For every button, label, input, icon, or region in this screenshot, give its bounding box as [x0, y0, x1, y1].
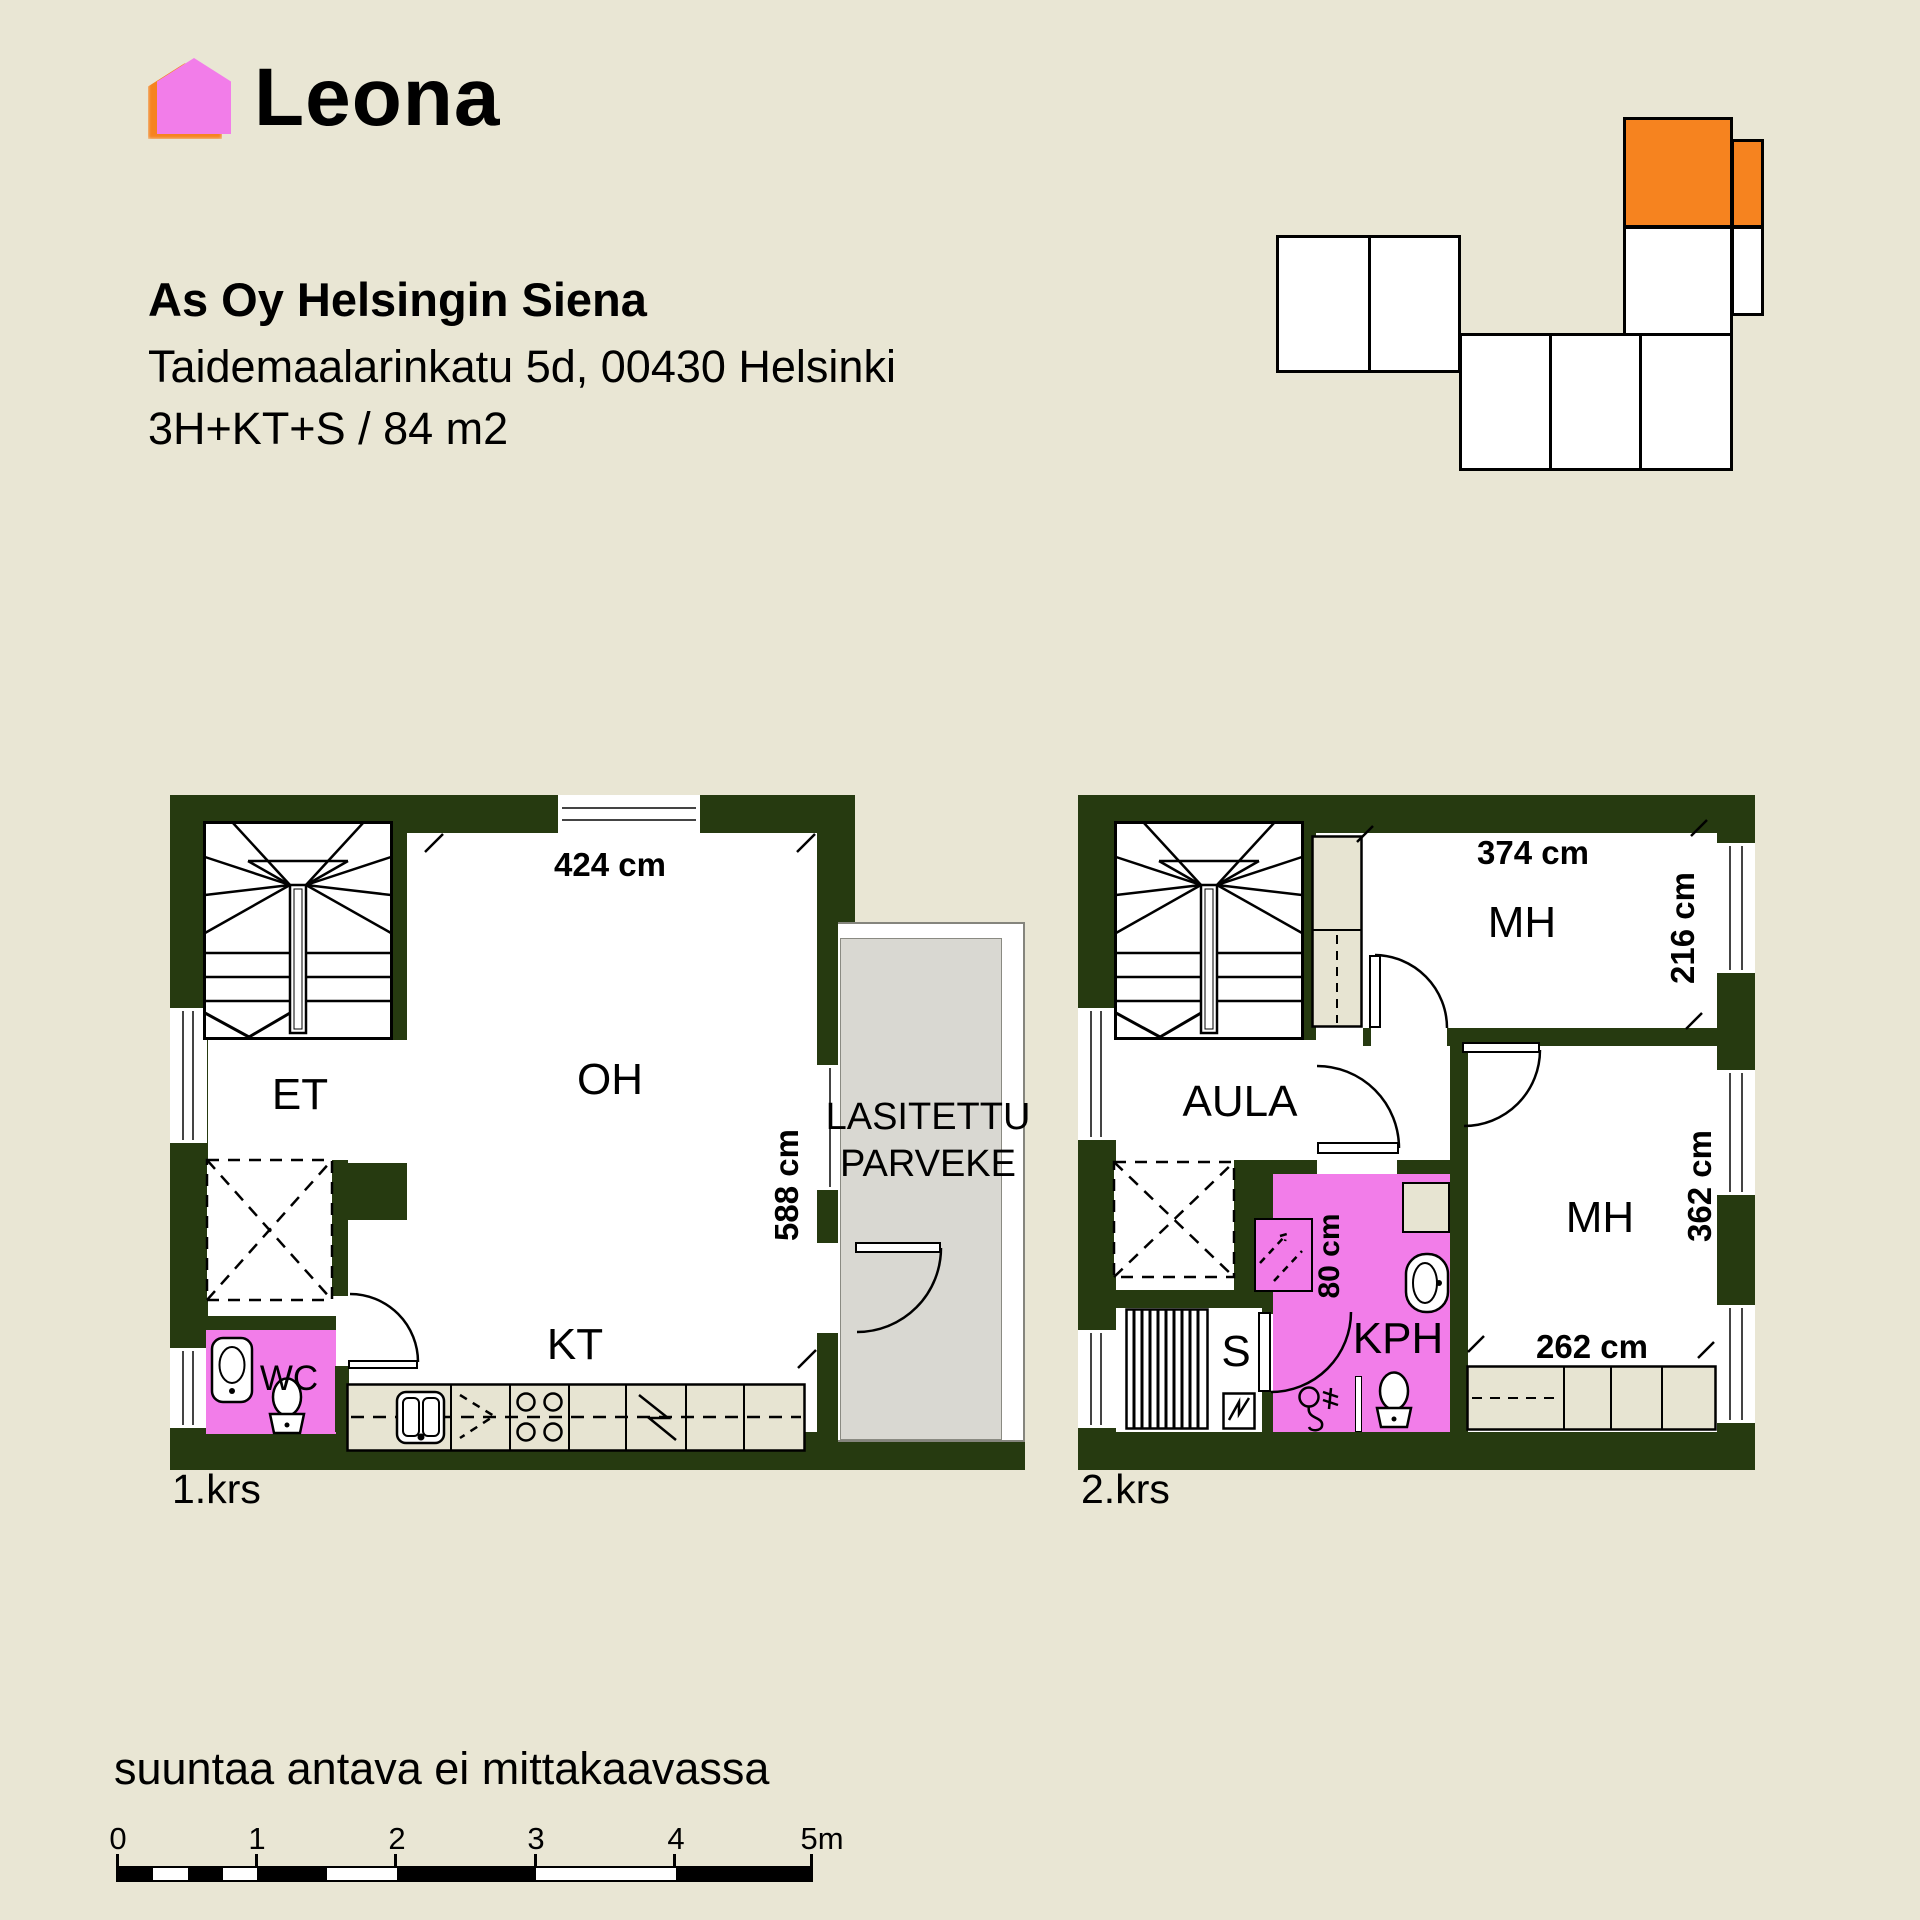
- door-arc: [1375, 955, 1447, 1028]
- dimension-tick: [1686, 1013, 1702, 1029]
- site-map-highlighted-unit-small: [1731, 139, 1764, 228]
- dimension-tick: [1691, 820, 1707, 836]
- scale-bar: 0 1 2 3 4 5m: [116, 1824, 818, 1884]
- shower-direction-arrow: [1260, 1234, 1287, 1263]
- scale-bar-track: [116, 1866, 813, 1882]
- site-map-unit: [1549, 333, 1642, 471]
- floor2-label: 2.krs: [1081, 1466, 1281, 1512]
- scale-label: 2: [379, 1824, 415, 1854]
- scale-tick: [673, 1854, 676, 1866]
- site-map-unit: [1459, 333, 1552, 471]
- site-map-unit: [1623, 226, 1733, 336]
- scale-tick: [394, 1854, 397, 1866]
- door-arc: [350, 1294, 418, 1362]
- site-map-unit: [1639, 333, 1733, 471]
- dimension-tick: [1468, 1336, 1484, 1352]
- dimension-tick: [425, 834, 443, 852]
- scale-label: 3: [518, 1824, 554, 1854]
- scale-label: 0: [100, 1824, 136, 1854]
- site-map: [0, 0, 1920, 500]
- disclaimer: suuntaa antava ei mittakaavassa: [114, 1742, 1014, 1796]
- floor1-label: 1.krs: [172, 1466, 372, 1512]
- door-arc: [1317, 1066, 1399, 1148]
- scale-label: 5m: [792, 1824, 852, 1854]
- dimension-tick: [798, 1350, 816, 1368]
- dimension-tick: [1698, 1342, 1714, 1358]
- scale-label: 1: [239, 1824, 275, 1854]
- door-arc: [1464, 1050, 1540, 1126]
- site-map-highlighted-unit: [1623, 117, 1733, 228]
- site-map-unit: [1731, 226, 1764, 316]
- floor2-annotations: [1078, 795, 1755, 1470]
- floor1-annotations: [170, 795, 1030, 1470]
- scale-tick: [116, 1854, 119, 1866]
- scale-tick: [534, 1854, 537, 1866]
- scale-label: 4: [658, 1824, 694, 1854]
- scale-tick: [255, 1854, 258, 1866]
- site-map-unit: [1276, 235, 1371, 373]
- door-arc: [1271, 1312, 1351, 1392]
- door-arc: [857, 1248, 941, 1332]
- dimension-tick: [1357, 826, 1373, 842]
- scale-tick: [810, 1854, 813, 1866]
- site-map-unit: [1368, 235, 1461, 373]
- dimension-tick: [797, 834, 815, 852]
